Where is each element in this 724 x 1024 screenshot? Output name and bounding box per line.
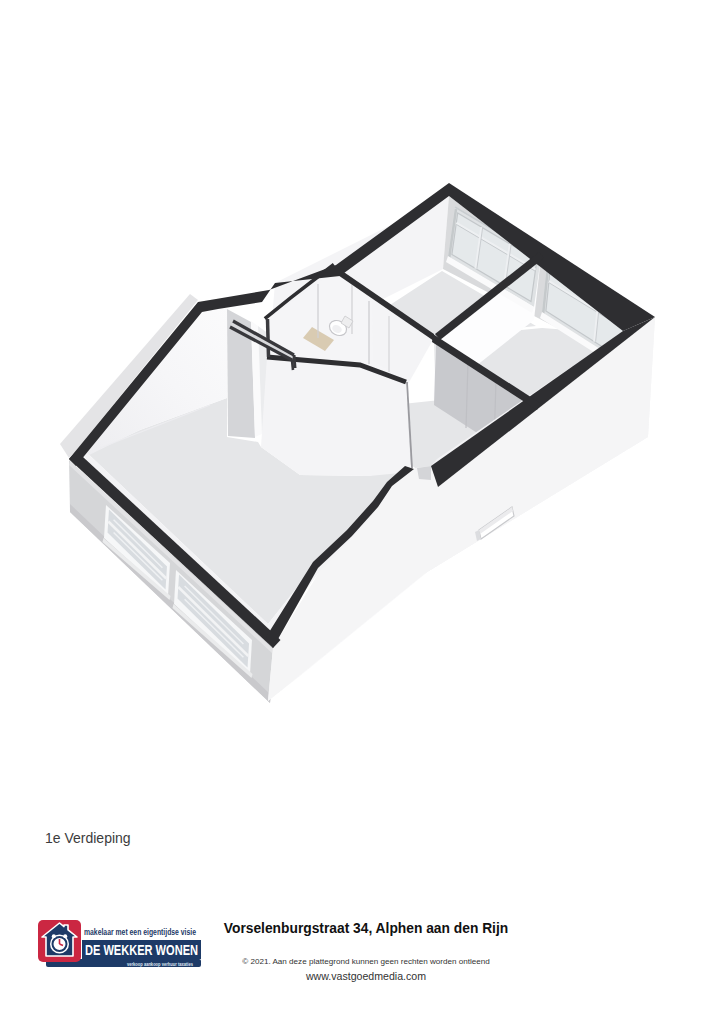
svg-text:DE WEKKER WONEN: DE WEKKER WONEN	[85, 941, 198, 958]
